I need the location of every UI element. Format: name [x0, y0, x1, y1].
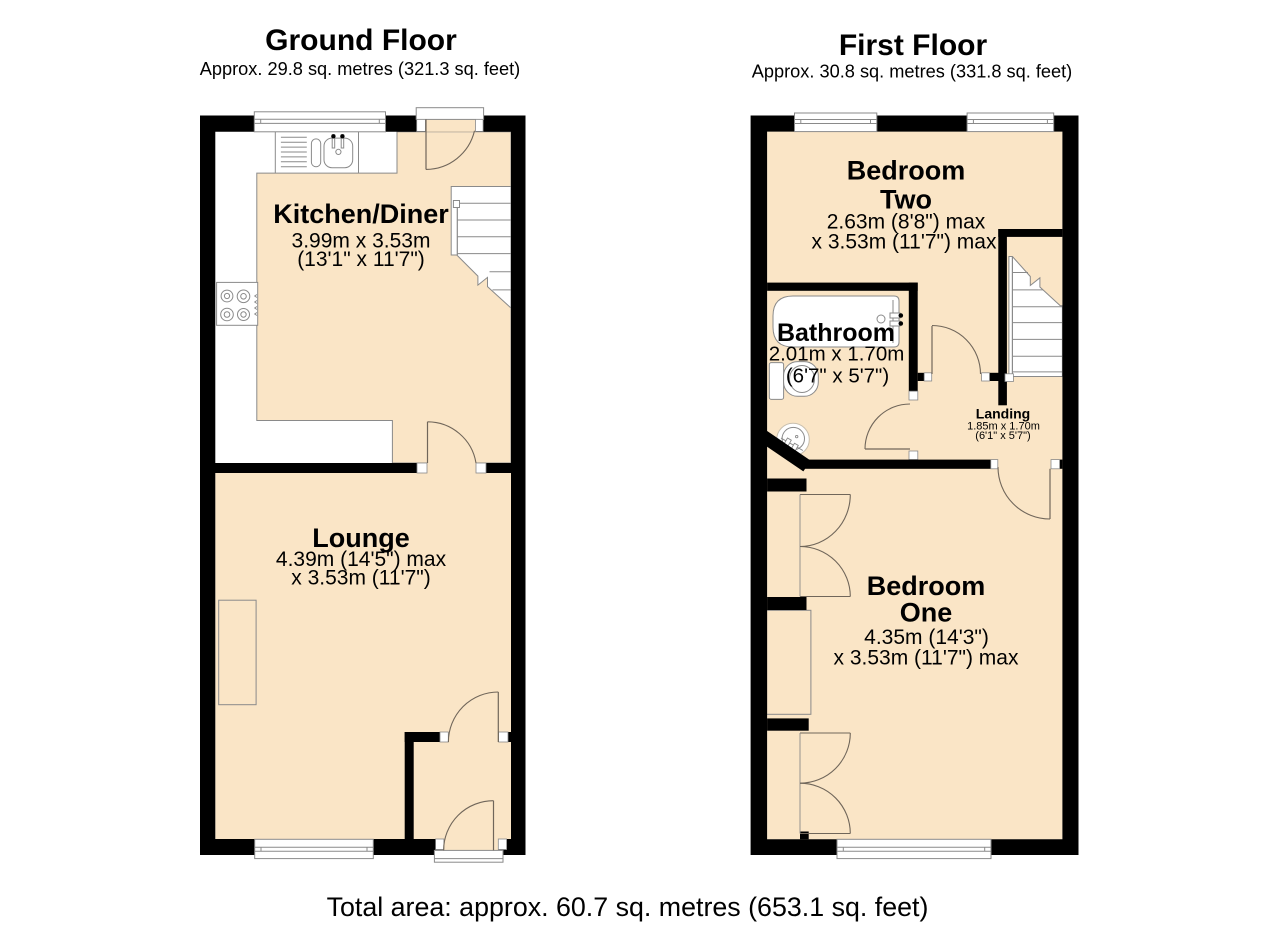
svg-text:Bedroom: Bedroom [847, 156, 966, 186]
svg-text:x 3.53m (11'7") max: x 3.53m (11'7") max [812, 231, 997, 254]
svg-text:First Floor: First Floor [839, 29, 988, 62]
svg-text:x 3.53m (11'7") max: x 3.53m (11'7") max [834, 647, 1019, 670]
svg-text:2.01m x 1.70m: 2.01m x 1.70m [769, 343, 905, 366]
svg-text:Ground Floor: Ground Floor [265, 24, 457, 57]
svg-text:Total area: approx. 60.7 sq. m: Total area: approx. 60.7 sq. metres (653… [327, 892, 929, 922]
svg-text:One: One [900, 598, 953, 628]
svg-text:x 3.53m (11'7"): x 3.53m (11'7") [291, 567, 430, 590]
svg-text:Bedroom: Bedroom [867, 571, 986, 601]
svg-text:(6'1" x 5'7"): (6'1" x 5'7") [975, 430, 1030, 442]
svg-text:Approx. 29.8 sq. metres (321.3: Approx. 29.8 sq. metres (321.3 sq. feet) [200, 59, 520, 79]
svg-text:Kitchen/Diner: Kitchen/Diner [273, 199, 449, 229]
svg-text:(13'1" x 11'7"): (13'1" x 11'7") [297, 248, 425, 271]
svg-text:Landing: Landing [976, 406, 1030, 422]
svg-text:Approx. 30.8 sq. metres (331.8: Approx. 30.8 sq. metres (331.8 sq. feet) [752, 62, 1072, 82]
svg-text:(6'7" x 5'7"): (6'7" x 5'7") [786, 365, 889, 388]
